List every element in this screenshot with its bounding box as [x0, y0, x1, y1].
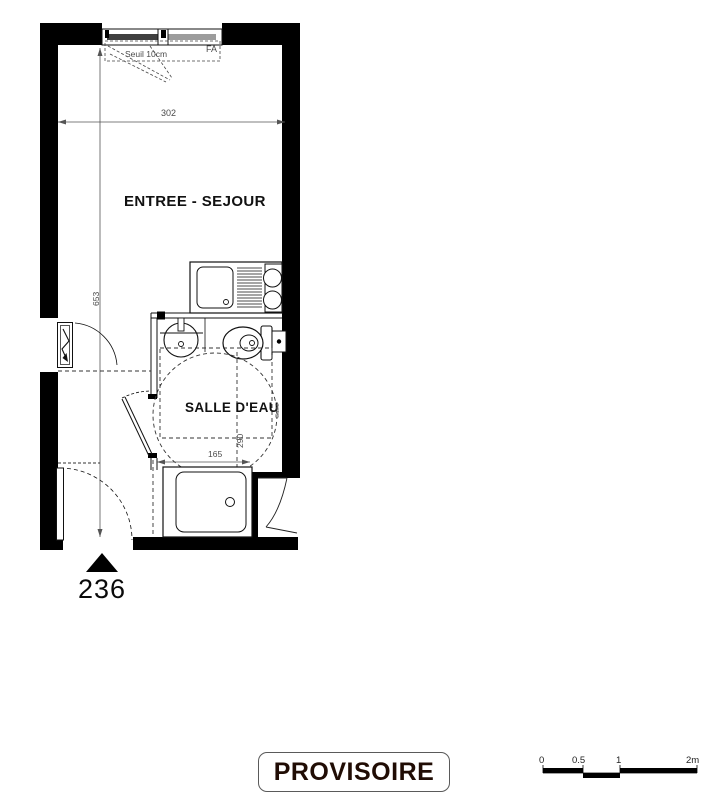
floor-plan-sheet: Seuil 10cm FA 302 ENTREE - SEJOUR 653 SA…	[0, 0, 724, 800]
shower	[163, 467, 252, 537]
kitchenette	[190, 262, 282, 313]
duct-annotation: Gaine	[276, 403, 282, 418]
washbasin	[160, 318, 205, 357]
scale-label-2m: 2m	[686, 756, 699, 766]
scale-label-1: 1	[616, 756, 621, 766]
scale-bar	[543, 765, 697, 778]
scale-label-05: 0.5	[572, 756, 585, 766]
sink	[197, 267, 233, 308]
floor-plan-drawing	[0, 0, 724, 800]
fa-annotation: FA	[206, 45, 217, 54]
provisoire-stamp: PROVISOIRE	[258, 752, 450, 792]
entrance-door	[58, 323, 118, 368]
toilet	[223, 326, 272, 360]
room-label-salle-deau: SALLE D'EAU	[185, 401, 279, 415]
duct-box	[272, 331, 286, 352]
scale-label-0: 0	[539, 756, 544, 766]
dimension-302: 302	[161, 109, 176, 118]
seuil-annotation: Seuil 10cm	[125, 50, 167, 59]
dimension-165: 165	[208, 450, 222, 459]
lower-door	[57, 468, 133, 540]
unit-number: 236	[76, 576, 128, 603]
dimension-290: 290	[236, 434, 245, 448]
dimension-302-line	[58, 120, 285, 125]
dimension-165-line	[157, 460, 250, 465]
unit-marker-triangle	[86, 553, 118, 572]
hob	[264, 264, 283, 312]
window	[102, 29, 222, 45]
dimension-653: 653	[92, 292, 101, 306]
neighbor-fixture	[258, 478, 297, 533]
bathroom-door	[122, 391, 152, 456]
room-label-entree-sejour: ENTREE - SEJOUR	[124, 194, 266, 209]
